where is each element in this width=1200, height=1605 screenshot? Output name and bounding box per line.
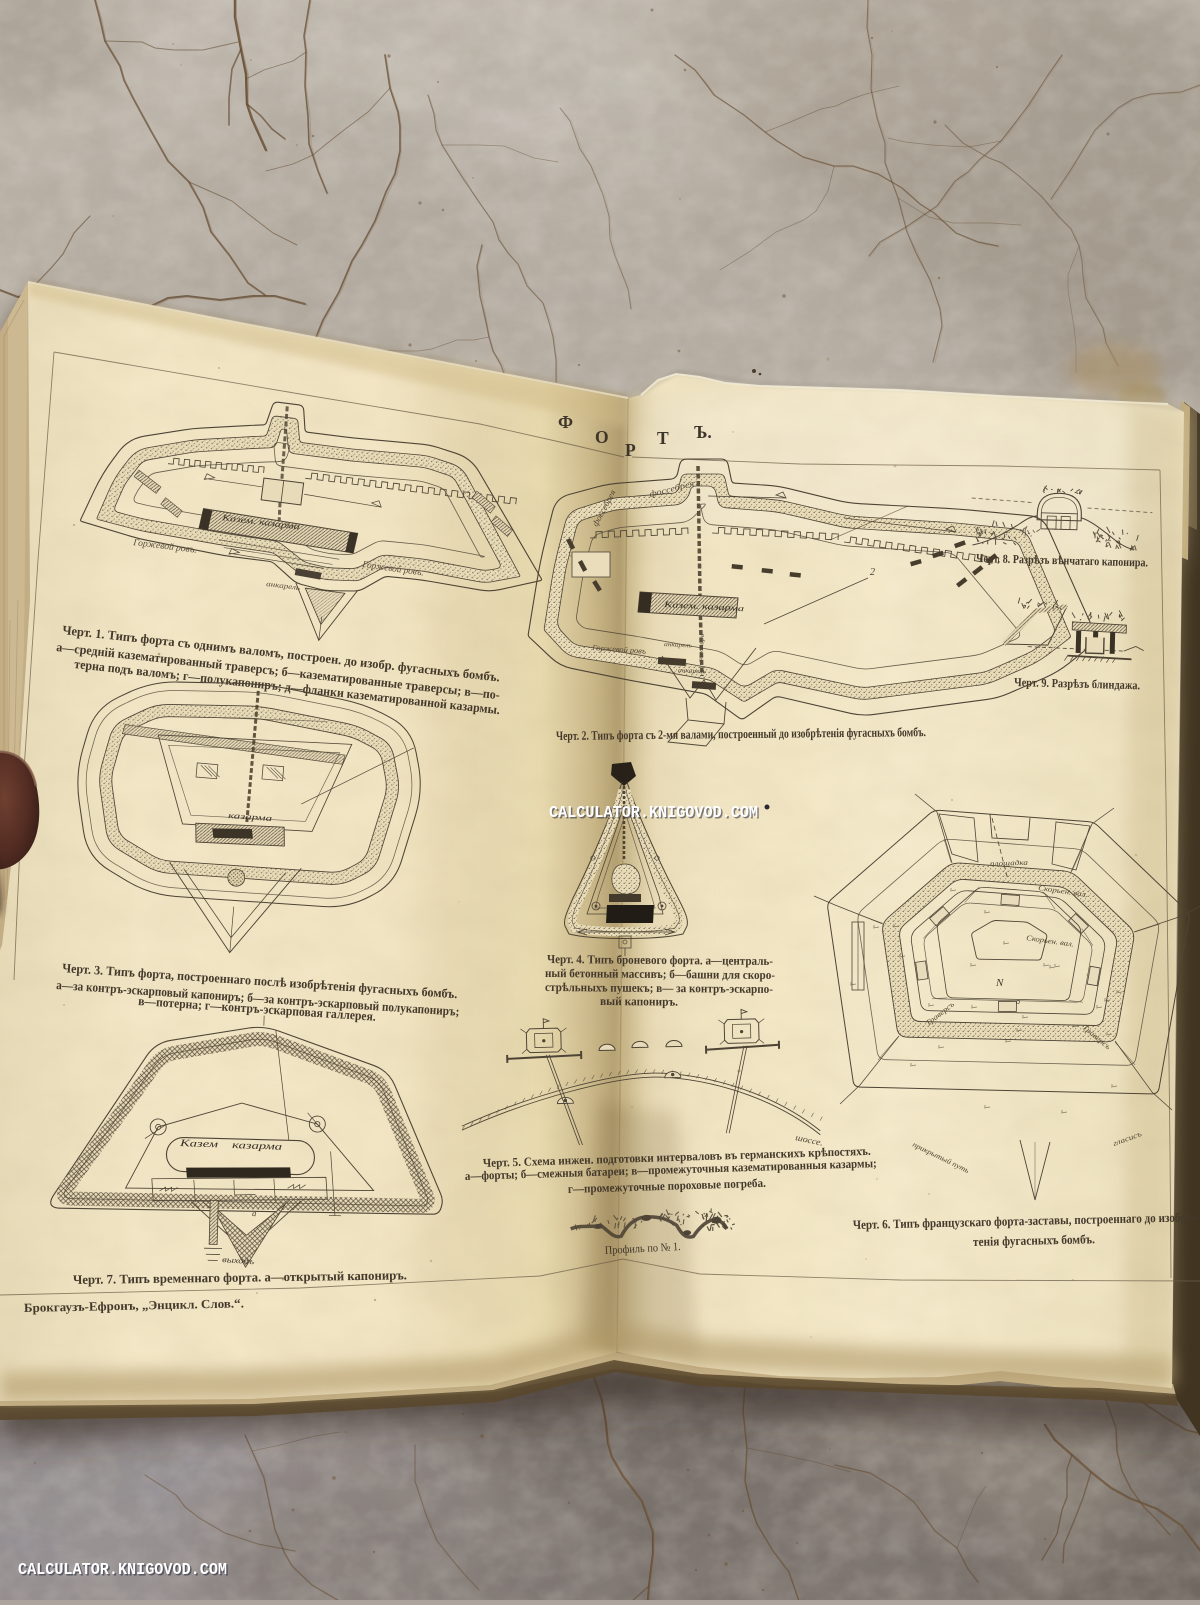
svg-text:анкарель: анкарель	[678, 667, 706, 675]
svg-text:О: О	[595, 427, 609, 447]
svg-text:Р: Р	[625, 440, 636, 460]
svg-text:2: 2	[870, 567, 875, 578]
svg-text:казарма: казарма	[232, 1140, 282, 1153]
svg-text:CALCULATOR.KNIGOVOD.COM: CALCULATOR.KNIGOVOD.COM	[549, 804, 758, 823]
svg-text:Ф: Ф	[558, 412, 573, 432]
svg-text:о: о	[1016, 997, 1020, 1006]
svg-text:Ъ.: Ъ.	[694, 422, 712, 442]
svg-text:тенія фугасныхъ бомбъ.: тенія фугасныхъ бомбъ.	[973, 1232, 1095, 1249]
svg-text:Казем: Казем	[178, 1138, 219, 1150]
svg-text:анкарель: анкарель	[664, 641, 692, 649]
svg-text:Т: Т	[657, 428, 669, 448]
svg-text:CALCULATOR.KNIGOVOD.COM: CALCULATOR.KNIGOVOD.COM	[18, 1561, 227, 1580]
svg-text:площадка: площадка	[990, 858, 1029, 868]
svg-text:а: а	[252, 1208, 257, 1218]
svg-text:вый капониръ.: вый капониръ.	[600, 994, 678, 1009]
svg-text:N: N	[995, 977, 1004, 989]
